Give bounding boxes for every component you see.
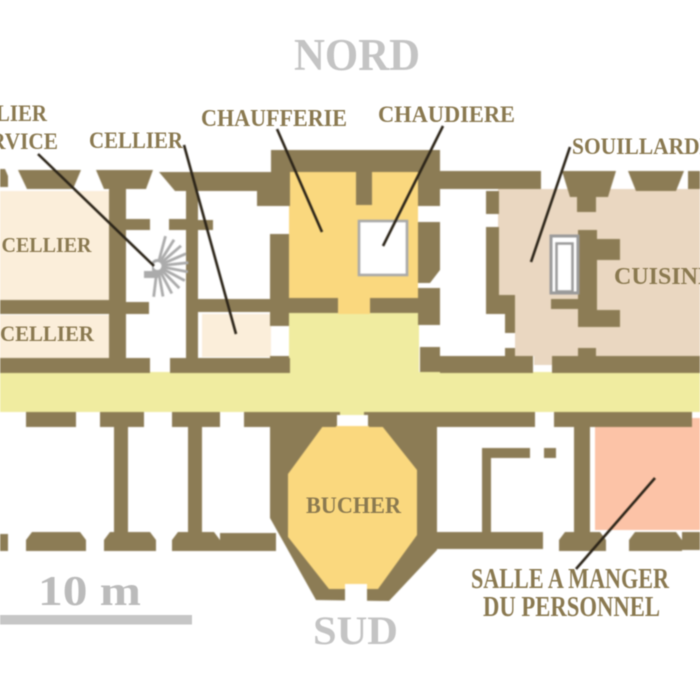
svg-text:CELLIER: CELLIER: [89, 128, 183, 153]
svg-text:SERVICE: SERVICE: [0, 129, 58, 154]
svg-text:CUISINE: CUISINE: [614, 264, 700, 290]
svg-text:DU PERSONNEL: DU PERSONNEL: [483, 592, 660, 623]
svg-text:SALLE A MANGER: SALLE A MANGER: [471, 564, 670, 595]
svg-text:CHAUFFERIE: CHAUFFERIE: [201, 106, 347, 132]
svg-text:CELLIER: CELLIER: [0, 101, 47, 126]
svg-text:10 m: 10 m: [38, 569, 141, 615]
svg-text:SUD: SUD: [313, 608, 398, 653]
svg-text:SOUILLARDE: SOUILLARDE: [572, 134, 700, 159]
svg-text:CELLIER: CELLIER: [2, 233, 93, 257]
svg-text:CELLIER: CELLIER: [0, 321, 95, 346]
svg-text:BUCHER: BUCHER: [306, 493, 401, 518]
svg-text:CHAUDIERE: CHAUDIERE: [378, 102, 515, 127]
svg-text:NORD: NORD: [294, 30, 420, 80]
